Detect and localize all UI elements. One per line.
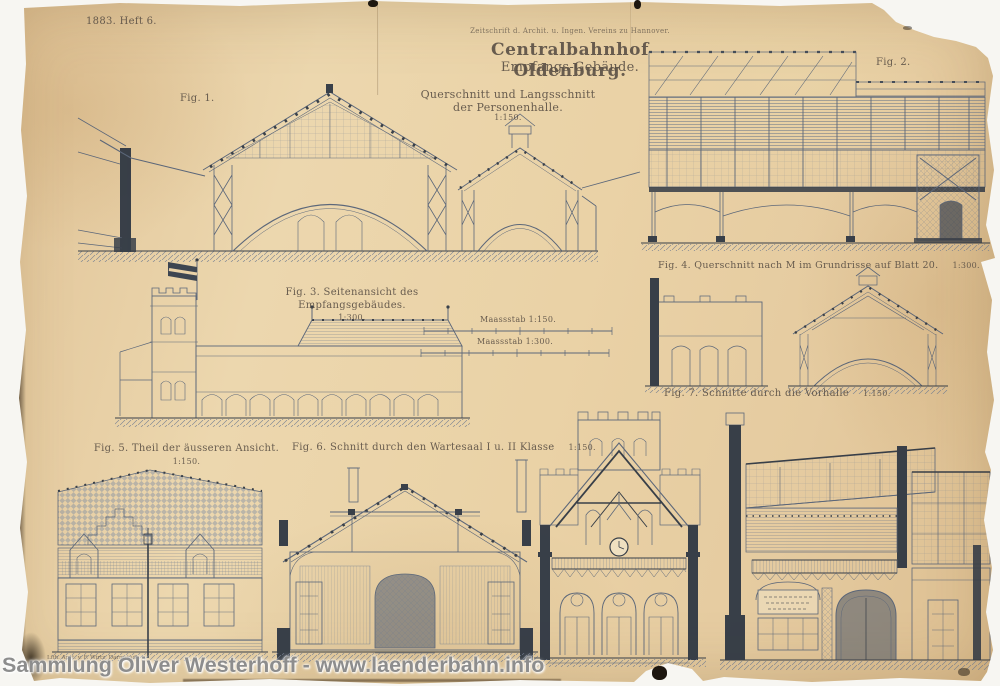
fig2-drawing <box>641 52 990 251</box>
issue-label: 1883. Heft 6. <box>86 16 157 29</box>
paper-tear-mark <box>652 666 667 680</box>
fig6-caption: Fig. 6. Schnitt durch den Wartesaal I u.… <box>292 442 596 455</box>
fig6-scale: 1:150. <box>568 443 595 452</box>
fig5-caption: Fig. 5. Theil der äusseren Ansicht. 1:15… <box>84 443 289 468</box>
scanned-plate: 1883. Heft 6. Zeitschrift d. Archit. u. … <box>0 0 1000 686</box>
fig5-drawing <box>52 470 268 661</box>
fig7-caption: Fig. 7. Schnitte durch die Vorhalle1:150… <box>664 388 891 401</box>
scalebar2-label: Maassstab 1:300. <box>421 337 609 347</box>
scalebar1-label: Maassstab 1:150. <box>424 315 612 325</box>
fig3-caption-text: Fig. 3. Seitenansicht des Empfangsgebäud… <box>286 287 419 311</box>
fig7-right-drawing <box>720 413 993 670</box>
fig7-scale: 1:150. <box>863 389 890 398</box>
fig4-caption-text: Fig. 4. Querschnitt nach M im Grundrisse… <box>658 260 938 271</box>
fig1-label: Fig. 1. <box>180 93 215 106</box>
fig3-drawing <box>115 258 470 427</box>
collection-watermark: Sammlung Oliver Westerhoff - www.laender… <box>2 653 544 678</box>
fig4-scale: 1:300. <box>952 261 979 270</box>
fig4-drawing <box>645 267 948 394</box>
fig3-scale: 1:300. <box>338 313 365 322</box>
fig5-scale: 1:150. <box>173 457 200 466</box>
paper-tear-mark <box>903 26 912 30</box>
paper-tear-mark <box>368 0 378 7</box>
plate-subtitle: Empfangs-Gebäude. <box>450 60 690 76</box>
journal-name: Zeitschrift d. Archit. u. Ingen. Vereins… <box>470 27 670 36</box>
fig4-caption: Fig. 4. Querschnitt nach M im Grundrisse… <box>658 260 980 272</box>
fig6-drawing <box>272 460 538 662</box>
subject-line-1: Querschnitt und Langsschnitt <box>418 88 598 102</box>
subject-scale: 1:150. <box>418 113 598 123</box>
fig7-caption-text: Fig. 7. Schnitte durch die Vorhalle <box>664 388 849 399</box>
paper-tear-mark <box>958 668 970 676</box>
fig2-label: Fig. 2. <box>876 57 911 70</box>
fig6-caption-text: Fig. 6. Schnitt durch den Wartesaal I u.… <box>292 442 554 453</box>
paper-sheet: 1883. Heft 6. Zeitschrift d. Archit. u. … <box>0 0 1000 686</box>
paper-tear-mark <box>634 0 641 9</box>
fig5-caption-text: Fig. 5. Theil der äusseren Ansicht. <box>94 443 279 454</box>
